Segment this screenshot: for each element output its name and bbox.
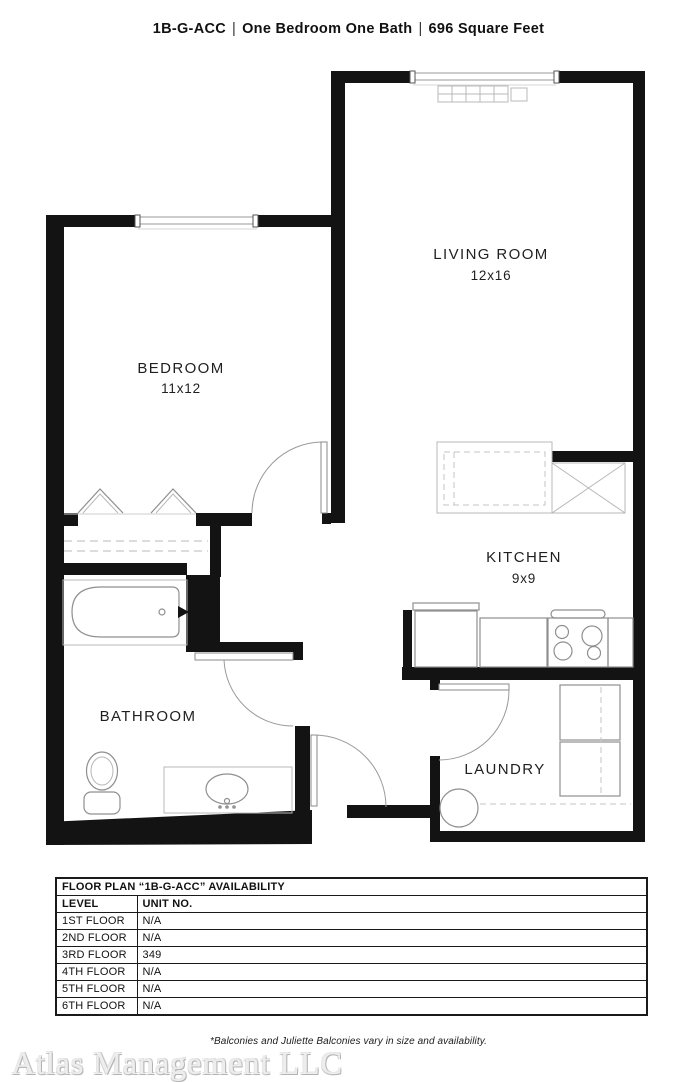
col-header-unit: UNIT NO. bbox=[137, 896, 647, 913]
level-cell: 5TH FLOOR bbox=[56, 981, 137, 998]
unit-cell: N/A bbox=[137, 998, 647, 1016]
living-room-label: LIVING ROOM bbox=[433, 246, 548, 263]
toilet-icon bbox=[84, 752, 120, 814]
availability-table: FLOOR PLAN “1B-G-ACC” AVAILABILITY LEVEL… bbox=[55, 877, 648, 1016]
col-header-level: LEVEL bbox=[56, 896, 137, 913]
table-title-row: FLOOR PLAN “1B-G-ACC” AVAILABILITY bbox=[56, 878, 647, 896]
bedroom-label: BEDROOM bbox=[137, 360, 224, 377]
refrigerator-icon bbox=[413, 603, 479, 667]
table-row: 3RD FLOOR 349 bbox=[56, 947, 647, 964]
company-watermark: Atlas Management LLC bbox=[12, 1045, 343, 1082]
bathtub-icon bbox=[63, 580, 189, 645]
unit-cell: 349 bbox=[137, 947, 647, 964]
laundry-door bbox=[439, 684, 509, 760]
kitchen-label: KITCHEN bbox=[486, 549, 562, 566]
bedroom-door bbox=[252, 442, 327, 513]
level-cell: 3RD FLOOR bbox=[56, 947, 137, 964]
unit-cell: N/A bbox=[137, 964, 647, 981]
laundry-basket-icon bbox=[440, 789, 478, 827]
unit-cell: N/A bbox=[137, 913, 647, 930]
table-row: 4TH FLOOR N/A bbox=[56, 964, 647, 981]
unit-cell: N/A bbox=[137, 981, 647, 998]
kitchen-island bbox=[437, 442, 552, 513]
table-row: 5TH FLOOR N/A bbox=[56, 981, 647, 998]
entry-door bbox=[311, 735, 386, 807]
level-cell: 1ST FLOOR bbox=[56, 913, 137, 930]
table-title: FLOOR PLAN “1B-G-ACC” AVAILABILITY bbox=[56, 878, 647, 896]
pantry-box bbox=[552, 463, 625, 513]
unit-code: 1B-G-ACC bbox=[153, 21, 226, 37]
table-header-row: LEVEL UNIT NO. bbox=[56, 896, 647, 913]
kitchen-counter bbox=[480, 618, 633, 667]
closet-bifold-doors bbox=[64, 489, 208, 551]
level-cell: 6TH FLOOR bbox=[56, 998, 137, 1016]
stove-icon bbox=[548, 610, 608, 667]
bathroom-label: BATHROOM bbox=[100, 708, 197, 725]
level-cell: 2ND FLOOR bbox=[56, 930, 137, 947]
bedroom-window bbox=[135, 215, 258, 229]
bedroom-dims: 11x12 bbox=[161, 381, 201, 396]
vanity-sink-icon bbox=[164, 767, 292, 813]
page-title: 1B-G-ACC|One Bedroom One Bath|696 Square… bbox=[0, 21, 697, 37]
floor-plan: LIVING ROOM 12x16 BEDROOM 11x12 KITCHEN … bbox=[0, 50, 697, 860]
kitchen-dims: 9x9 bbox=[512, 571, 536, 586]
table-row: 1ST FLOOR N/A bbox=[56, 913, 647, 930]
washer-dryer-icon bbox=[480, 685, 631, 804]
unit-type: One Bedroom One Bath bbox=[242, 21, 412, 37]
living-room-window bbox=[410, 71, 559, 85]
title-separator: | bbox=[232, 21, 236, 37]
laundry-label: LAUNDRY bbox=[464, 761, 545, 778]
level-cell: 4TH FLOOR bbox=[56, 964, 137, 981]
table-row: 2ND FLOOR N/A bbox=[56, 930, 647, 947]
walls bbox=[46, 71, 645, 845]
bathroom-door bbox=[195, 653, 293, 726]
baseboard-heater-icon bbox=[438, 86, 527, 102]
living-room-dims: 12x16 bbox=[471, 268, 512, 283]
unit-cell: N/A bbox=[137, 930, 647, 947]
table-row: 6TH FLOOR N/A bbox=[56, 998, 647, 1016]
title-separator: | bbox=[418, 21, 422, 37]
unit-sqft: 696 Square Feet bbox=[429, 21, 545, 37]
